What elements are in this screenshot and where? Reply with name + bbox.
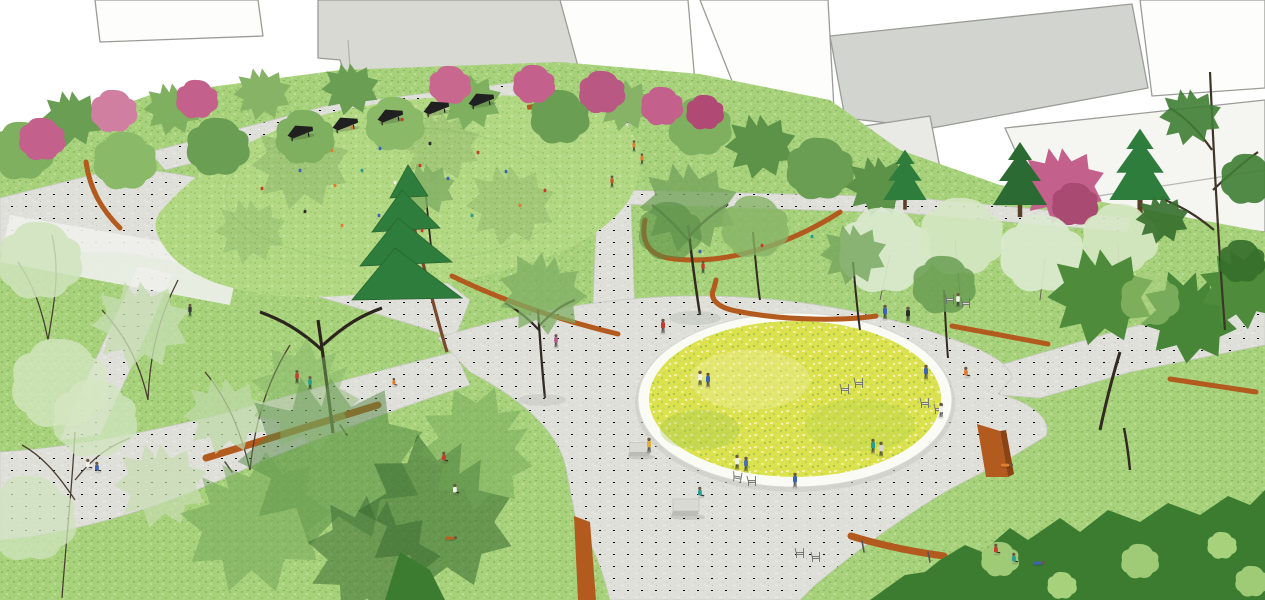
distant-person [394,181,397,184]
distant-person [378,214,381,217]
distant-person [477,151,480,154]
distant-person [334,184,337,187]
park-rendering: Aerial architectural rendering of a park… [0,0,1265,600]
distant-person [699,250,702,253]
distant-person [351,126,354,129]
distant-person [261,187,264,190]
distant-person [379,147,382,150]
distant-person [471,214,474,217]
distant-person [341,224,344,227]
distant-person [299,169,302,172]
distant-person [331,149,334,152]
distant-person [505,170,508,173]
distant-person [419,164,422,167]
distant-person [519,204,522,207]
building [95,0,263,42]
distant-person [421,229,424,232]
distant-person [401,118,404,121]
distant-person [544,189,547,192]
distant-person [429,142,432,145]
distant-person [447,177,450,180]
distant-person [811,235,814,238]
flower-bed: Oval wildflower planting bed [635,313,955,492]
distant-person [361,169,364,172]
building [1140,0,1265,96]
distant-person [761,244,764,247]
park-scene-svg: Aerial architectural rendering of a park… [0,0,1265,600]
distant-person [304,210,307,213]
